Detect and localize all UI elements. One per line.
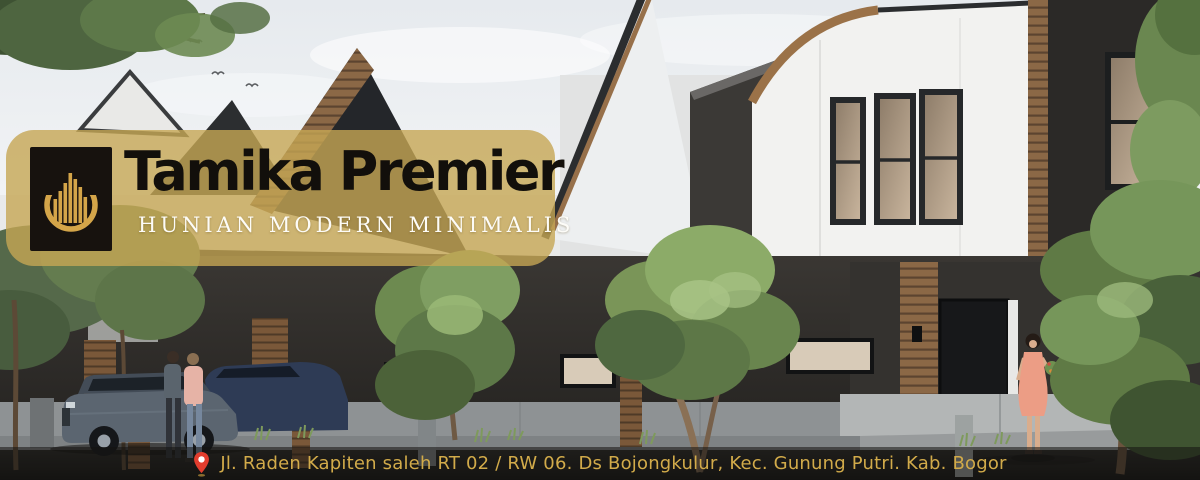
brand-badge: Tamika Premier HUNIAN MODERN MINIMALIS — [6, 130, 555, 266]
building-crescent-icon — [39, 159, 103, 239]
brand-text: Tamika Premier HUNIAN MODERN MINIMALIS — [124, 144, 544, 237]
brand-logo — [30, 147, 112, 251]
address-text: Jl. Raden Kapiten saleh RT 02 / RW 06. D… — [220, 453, 1006, 474]
location-pin-icon — [193, 451, 210, 477]
promo-banner: Tamika Premier HUNIAN MODERN MINIMALIS J… — [0, 0, 1200, 480]
brand-title: Tamika Premier — [124, 144, 544, 199]
brand-tagline: HUNIAN MODERN MINIMALIS — [138, 213, 544, 237]
address-bar: Jl. Raden Kapiten saleh RT 02 / RW 06. D… — [0, 447, 1200, 480]
